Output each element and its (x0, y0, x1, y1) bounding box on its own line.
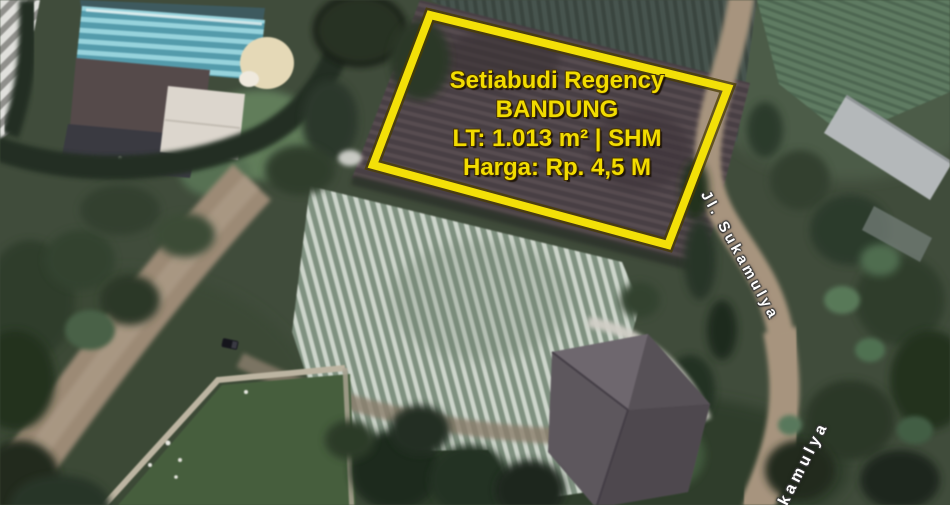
satellite-map: Setiabudi Regency BANDUNG LT: 1.013 m² |… (0, 0, 950, 505)
listing-project-name: Setiabudi Regency (407, 66, 707, 95)
listing-land-info: LT: 1.013 m² | SHM (407, 124, 707, 153)
listing-price-info: Harga: Rp. 4,5 M (407, 153, 707, 182)
listing-info-overlay: Setiabudi Regency BANDUNG LT: 1.013 m² |… (407, 66, 707, 182)
listing-city: BANDUNG (407, 95, 707, 124)
